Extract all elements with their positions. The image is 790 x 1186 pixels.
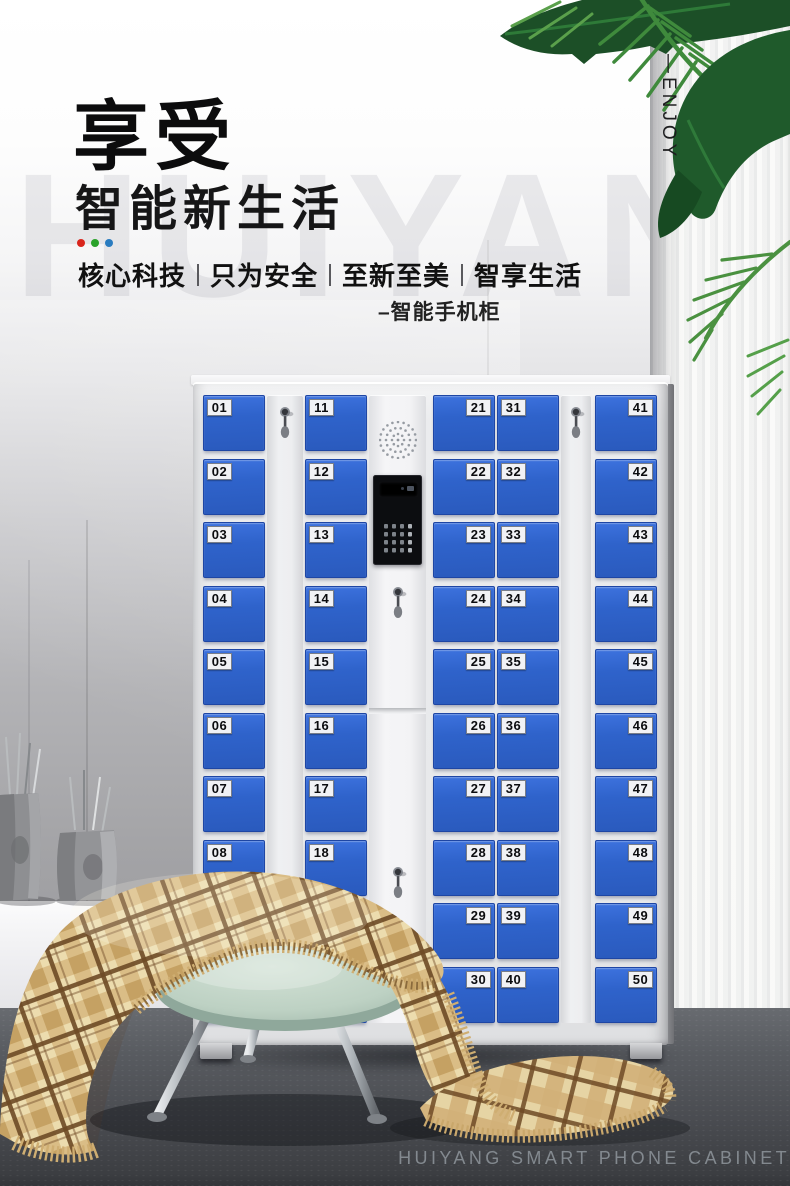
tropical-leaves bbox=[440, 0, 790, 460]
tagline-item: 智享生活 bbox=[474, 256, 582, 293]
accent-dots bbox=[77, 239, 113, 247]
product-label: –智能手机柜 bbox=[378, 296, 501, 326]
tagline-separator bbox=[329, 264, 331, 286]
accent-dot bbox=[105, 239, 113, 247]
vertical-enjoy-text: —ENJOY bbox=[657, 54, 679, 160]
tagline-item: 只为安全 bbox=[210, 256, 318, 293]
poster: HUIYANG HUIYANG SMART PHONE CABINET 0102… bbox=[0, 0, 790, 1186]
tagline-item: 核心科技 bbox=[78, 256, 186, 293]
page-subtitle: 智能新生活 bbox=[75, 186, 345, 234]
tagline-separator bbox=[197, 264, 199, 286]
accent-dot bbox=[77, 239, 85, 247]
accent-dot bbox=[91, 239, 99, 247]
tagline-item: 至新至美 bbox=[342, 256, 450, 293]
page-title: 享受 bbox=[73, 100, 237, 176]
palm-frond-icon bbox=[688, 242, 790, 360]
tagline-separator bbox=[461, 264, 463, 286]
tagline: 核心科技只为安全至新至美智享生活 bbox=[78, 256, 582, 293]
